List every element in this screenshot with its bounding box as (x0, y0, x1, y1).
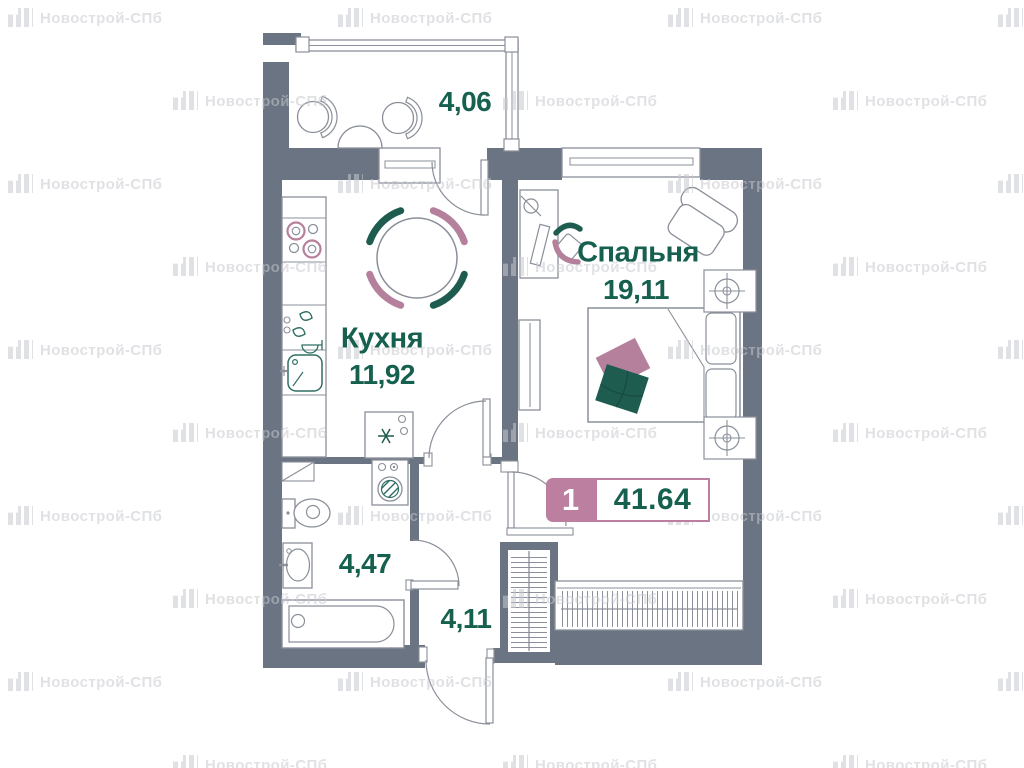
vent-symbol-2 (704, 417, 756, 459)
total-area-badge: 41.64 (595, 478, 710, 522)
balcony-table (338, 126, 382, 148)
rooms-count-badge: 1 (546, 478, 595, 522)
summary-badge: 1 41.64 (546, 478, 710, 522)
kitchen-name-label: Кухня (341, 323, 423, 356)
washing-machine (372, 460, 408, 505)
bedroom-window (562, 148, 700, 177)
kitchen-window (379, 148, 440, 183)
bathroom-shelf (282, 462, 314, 481)
balcony-area-label: 4,06 (439, 86, 492, 118)
kitchen-door (429, 399, 490, 458)
washbasin (279, 543, 312, 588)
toilet (282, 499, 330, 528)
dining-table (370, 211, 465, 306)
hallway-area-label: 4,11 (441, 603, 492, 635)
bedroom-area-label: 19,11 (603, 274, 669, 306)
bed (588, 308, 740, 422)
bedroom-wardrobe (519, 320, 540, 410)
vent-symbol (704, 270, 756, 312)
kitchen-area-label: 11,92 (349, 359, 415, 391)
floor-plan (0, 0, 1024, 768)
bathtub (282, 600, 404, 648)
bedroom-name-label: Спальня (577, 237, 699, 270)
bathroom-area-label: 4,47 (339, 548, 392, 580)
entrance-door (426, 658, 493, 724)
fridge (365, 412, 413, 458)
bedroom-built-in-wardrobe (555, 581, 743, 630)
bathroom-door (411, 540, 459, 589)
floor-plan-page: Новострой-СПбНовострой-СПбНовострой-СПбН… (0, 0, 1024, 768)
desk (520, 190, 558, 278)
